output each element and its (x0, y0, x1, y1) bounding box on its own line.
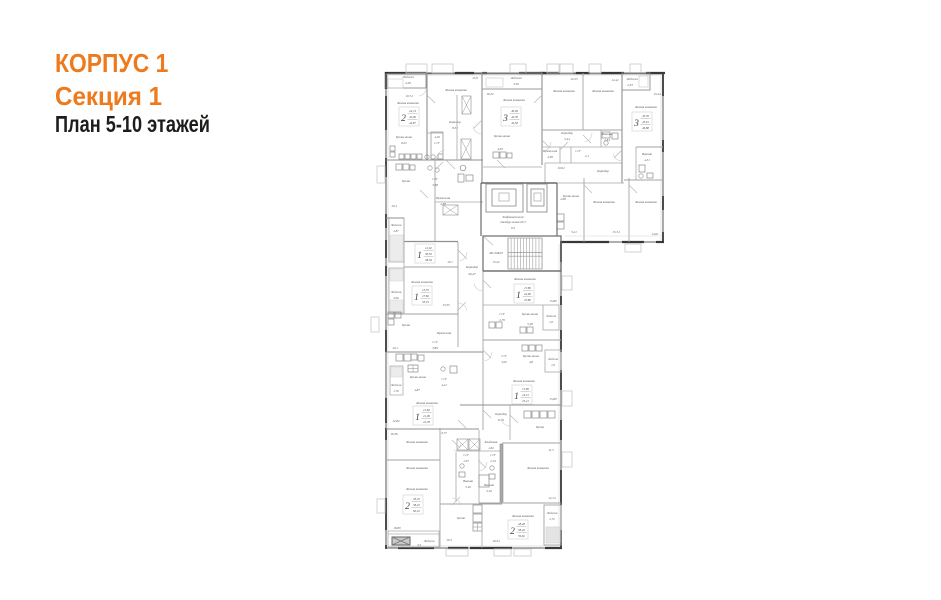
svg-text:Жилая комната: Жилая комната (415, 401, 438, 405)
svg-text:16,89: 16,89 (393, 526, 401, 531)
svg-text:Прихожая: Прихожая (435, 196, 451, 200)
svg-text:Жилая комната: Жилая комната (405, 466, 428, 470)
svg-text:Жилая комната: Жилая комната (405, 440, 428, 444)
svg-text:5,44: 5,44 (564, 137, 570, 142)
svg-text:59,62: 59,62 (518, 534, 525, 539)
svg-text:С/У: С/У (434, 141, 440, 145)
svg-text:Коридор: Коридор (448, 120, 461, 124)
svg-text:2,68: 2,68 (560, 197, 566, 202)
svg-text:12,25: 12,25 (570, 77, 578, 82)
svg-text:2,72: 2,72 (549, 517, 555, 522)
svg-text:1,8: 1,8 (551, 364, 555, 367)
svg-text:1: 1 (516, 291, 521, 301)
svg-text:2,19: 2,19 (490, 459, 496, 464)
svg-text:46,88: 46,88 (642, 126, 649, 131)
svg-text:Кухня: Кухня (535, 425, 544, 429)
svg-text:45,61: 45,61 (642, 120, 649, 125)
svg-text:3: 3 (633, 119, 639, 129)
svg-text:3,89: 3,89 (432, 346, 438, 351)
svg-text:2: 2 (405, 502, 410, 512)
svg-text:Коридор: Коридор (596, 169, 609, 173)
svg-text:Лифтовой холл/: Лифтовой холл/ (501, 214, 525, 219)
svg-text:13,44: 13,44 (653, 92, 661, 97)
svg-text:1: 1 (414, 293, 419, 303)
svg-text:42,96: 42,96 (409, 115, 416, 120)
svg-text:36,50: 36,50 (425, 252, 432, 257)
svg-text:Кладовая: Кладовая (484, 440, 498, 444)
svg-text:27,66: 27,66 (422, 294, 429, 299)
svg-text:14,01: 14,01 (651, 232, 659, 237)
svg-text:12,74: 12,74 (548, 496, 556, 501)
svg-text:Коридор: Коридор (465, 265, 478, 269)
svg-text:22,78: 22,78 (423, 420, 430, 425)
svg-text:24,51: 24,51 (522, 393, 529, 398)
svg-text:1,8: 1,8 (549, 321, 553, 324)
svg-text:Жилая комната: Жилая комната (592, 200, 615, 204)
svg-text:Ванная: Ванная (602, 132, 612, 136)
svg-text:5,28: 5,28 (527, 322, 533, 327)
svg-text:Жилая комната: Жилая комната (552, 89, 575, 93)
svg-text:Жилая комната: Жилая комната (526, 466, 549, 470)
svg-text:25,86: 25,86 (524, 298, 531, 303)
svg-text:3,02: 3,02 (501, 360, 507, 365)
svg-text:12,42: 12,42 (611, 78, 619, 83)
svg-text:Жилая комната: Жилая комната (405, 487, 428, 491)
svg-text:Кухня-ниша: Кухня-ниша (521, 312, 538, 316)
svg-text:3: 3 (502, 114, 508, 124)
svg-text:С/У: С/У (575, 149, 581, 153)
svg-text:10,1: 10,1 (392, 346, 398, 351)
svg-text:Жилая комната: Жилая комната (444, 88, 467, 92)
svg-text:Кухня-ниша: Кухня-ниша (522, 354, 539, 358)
svg-text:44,87: 44,87 (409, 121, 416, 126)
svg-text:25,41: 25,41 (522, 399, 529, 404)
svg-text:33,19: 33,19 (422, 300, 429, 305)
svg-text:3,16: 3,16 (486, 489, 492, 494)
svg-text:Жилая комната: Жилая комната (513, 277, 536, 281)
svg-text:С/У: С/У (432, 340, 438, 344)
svg-text:9,77: 9,77 (441, 431, 447, 436)
svg-text:1: 1 (415, 413, 420, 423)
svg-text:4,8: 4,8 (529, 360, 533, 365)
svg-text:Кухня: Кухня (401, 323, 410, 327)
svg-text:1,97: 1,97 (463, 459, 469, 464)
svg-text:15,74: 15,74 (612, 230, 620, 235)
svg-text:Лоджия: Лоджия (509, 76, 522, 80)
svg-text:13,35: 13,35 (442, 303, 450, 308)
svg-text:Коридор: Коридор (560, 131, 573, 135)
svg-text:Лоджия: Лоджия (401, 75, 414, 79)
svg-text:Коридор: Коридор (494, 412, 507, 416)
svg-text:Жилая комната: Жилая комната (634, 105, 657, 109)
svg-text:60,10: 60,10 (413, 509, 420, 514)
svg-text:42,78: 42,78 (511, 115, 518, 120)
svg-text:С/У: С/У (490, 453, 496, 457)
svg-text:10,74: 10,74 (405, 94, 413, 99)
svg-text:58,45: 58,45 (413, 503, 420, 508)
svg-text:21,90: 21,90 (423, 414, 430, 419)
svg-text:Кухня: Кухня (456, 516, 465, 520)
svg-text:Кухня-ниша: Кухня-ниша (409, 375, 426, 379)
svg-text:4,03: 4,03 (497, 147, 503, 152)
svg-text:Жилая комната: Жилая комната (512, 379, 535, 383)
svg-text:2: 2 (510, 527, 515, 537)
svg-text:44,58: 44,58 (511, 121, 518, 126)
svg-text:1,76: 1,76 (393, 389, 399, 394)
svg-text:2,84: 2,84 (604, 138, 610, 143)
svg-text:2,87: 2,87 (393, 229, 399, 234)
svg-text:15,89: 15,89 (549, 299, 557, 304)
svg-text:С/У: С/У (499, 312, 505, 316)
svg-text:1: 1 (417, 251, 422, 261)
svg-text:4,87: 4,87 (414, 388, 420, 393)
svg-text:4,29: 4,29 (434, 135, 440, 140)
svg-text:1,62: 1,62 (488, 446, 494, 451)
svg-text:Кухня: Кухня (401, 179, 410, 183)
svg-text:24,96: 24,96 (524, 292, 531, 297)
svg-text:Лоджия: Лоджия (545, 315, 557, 318)
svg-text:Жилая комната: Жилая комната (502, 98, 525, 102)
svg-text:10,7: 10,7 (447, 260, 453, 265)
svg-text:Жилая комната: Жилая комната (396, 101, 419, 105)
svg-text:Кухня-ниша: Кухня-ниша (395, 135, 412, 139)
svg-text:10,3: 10,3 (446, 538, 452, 543)
svg-text:4,38: 4,38 (547, 155, 553, 160)
svg-text:Лоджия: Лоджия (390, 383, 402, 387)
svg-text:10,4: 10,4 (391, 204, 397, 209)
svg-text:16,36: 16,36 (390, 432, 398, 437)
svg-text:С/У: С/У (463, 453, 469, 457)
svg-text:1: 1 (514, 392, 519, 402)
svg-text:15,22: 15,22 (492, 260, 500, 265)
svg-text:Лоджия: Лоджия (390, 290, 402, 294)
svg-text:12,82: 12,82 (392, 419, 400, 424)
svg-text:2,1: 2,1 (585, 154, 589, 159)
svg-text:Жилая комната: Жилая комната (591, 89, 614, 93)
svg-text:40,47: 40,47 (468, 272, 476, 277)
svg-text:Кухня-ниша: Кухня-ниша (493, 134, 510, 138)
svg-text:Лоджия: Лоджия (546, 511, 558, 515)
svg-text:Жилая комната: Жилая комната (511, 514, 534, 518)
svg-text:4,21: 4,21 (441, 383, 447, 388)
svg-text:13,8: 13,8 (472, 76, 478, 81)
svg-text:4,31: 4,31 (644, 158, 650, 163)
svg-text:3,16: 3,16 (465, 485, 471, 490)
svg-text:С/У: С/У (441, 377, 447, 381)
svg-text:2: 2 (401, 114, 406, 124)
svg-text:ЛК-30К25: ЛК-30К25 (488, 251, 503, 255)
svg-text:9,5: 9,5 (511, 226, 515, 231)
svg-text:10,02: 10,02 (557, 166, 565, 171)
svg-text:38,04: 38,04 (425, 258, 432, 263)
svg-text:тамбур-шлюз/10,3: тамбур-шлюз/10,3 (500, 220, 526, 225)
svg-text:С/У: С/У (432, 177, 438, 181)
svg-text:3,29: 3,29 (405, 81, 411, 86)
svg-text:3,59: 3,59 (513, 82, 519, 87)
svg-text:С/У: С/У (501, 354, 507, 358)
svg-text:16,32: 16,32 (486, 92, 494, 97)
svg-text:15,89: 15,89 (549, 397, 557, 402)
svg-text:6,01: 6,01 (401, 141, 407, 146)
svg-text:11,5: 11,5 (548, 448, 554, 453)
svg-text:Жилая комната: Жилая комната (634, 200, 657, 204)
svg-text:2,53: 2,53 (627, 83, 633, 88)
svg-text:Ванная: Ванная (463, 479, 473, 483)
svg-text:58,26: 58,26 (518, 528, 525, 533)
svg-text:Прихожая: Прихожая (436, 331, 452, 335)
svg-text:Лоджия: Лоджия (547, 358, 559, 361)
svg-text:Ванная: Ванная (642, 152, 652, 156)
svg-text:16,34: 16,34 (492, 539, 500, 544)
svg-text:5,21: 5,21 (571, 230, 577, 235)
svg-text:Лоджия: Лоджия (625, 77, 638, 81)
svg-text:Жилая комната: Жилая комната (410, 280, 433, 284)
svg-text:Лоджия: Лоджия (390, 223, 402, 227)
svg-text:Лоджия: Лоджия (423, 539, 435, 543)
